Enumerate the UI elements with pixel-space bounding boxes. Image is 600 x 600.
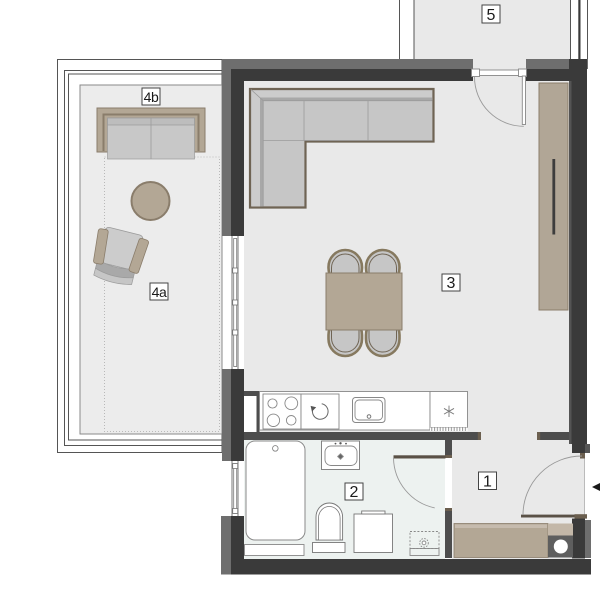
- svg-text:4a: 4a: [152, 284, 167, 300]
- svg-text:2: 2: [350, 484, 359, 501]
- svg-text:4b: 4b: [144, 89, 159, 105]
- svg-text:3: 3: [447, 275, 456, 292]
- svg-text:5: 5: [487, 7, 496, 24]
- svg-text:1: 1: [483, 474, 492, 491]
